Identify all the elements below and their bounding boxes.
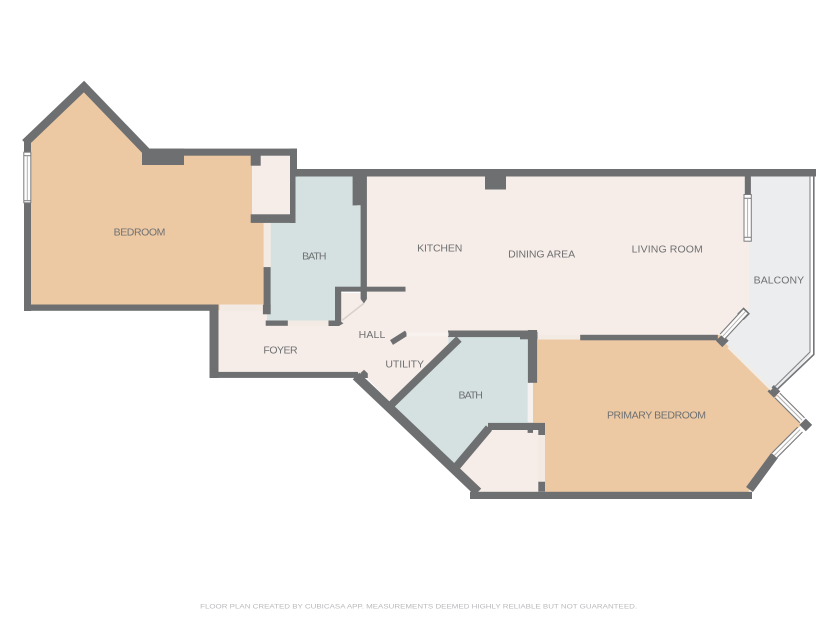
svg-text:FOYER: FOYER (263, 344, 298, 356)
svg-text:DINING AREA: DINING AREA (508, 248, 575, 260)
svg-text:PRIMARY BEDROOM: PRIMARY BEDROOM (607, 410, 706, 422)
svg-text:BATH: BATH (459, 390, 483, 402)
svg-text:BALCONY: BALCONY (754, 275, 805, 287)
svg-text:BATH: BATH (302, 250, 326, 262)
svg-text:FLOOR PLAN CREATED BY CUBICASA: FLOOR PLAN CREATED BY CUBICASA APP. MEAS… (200, 604, 637, 611)
svg-text:UTILITY: UTILITY (385, 358, 424, 370)
svg-text:HALL: HALL (359, 329, 386, 341)
svg-text:LIVING ROOM: LIVING ROOM (632, 244, 703, 256)
svg-text:KITCHEN: KITCHEN (417, 243, 462, 255)
svg-text:BEDROOM: BEDROOM (114, 226, 166, 238)
